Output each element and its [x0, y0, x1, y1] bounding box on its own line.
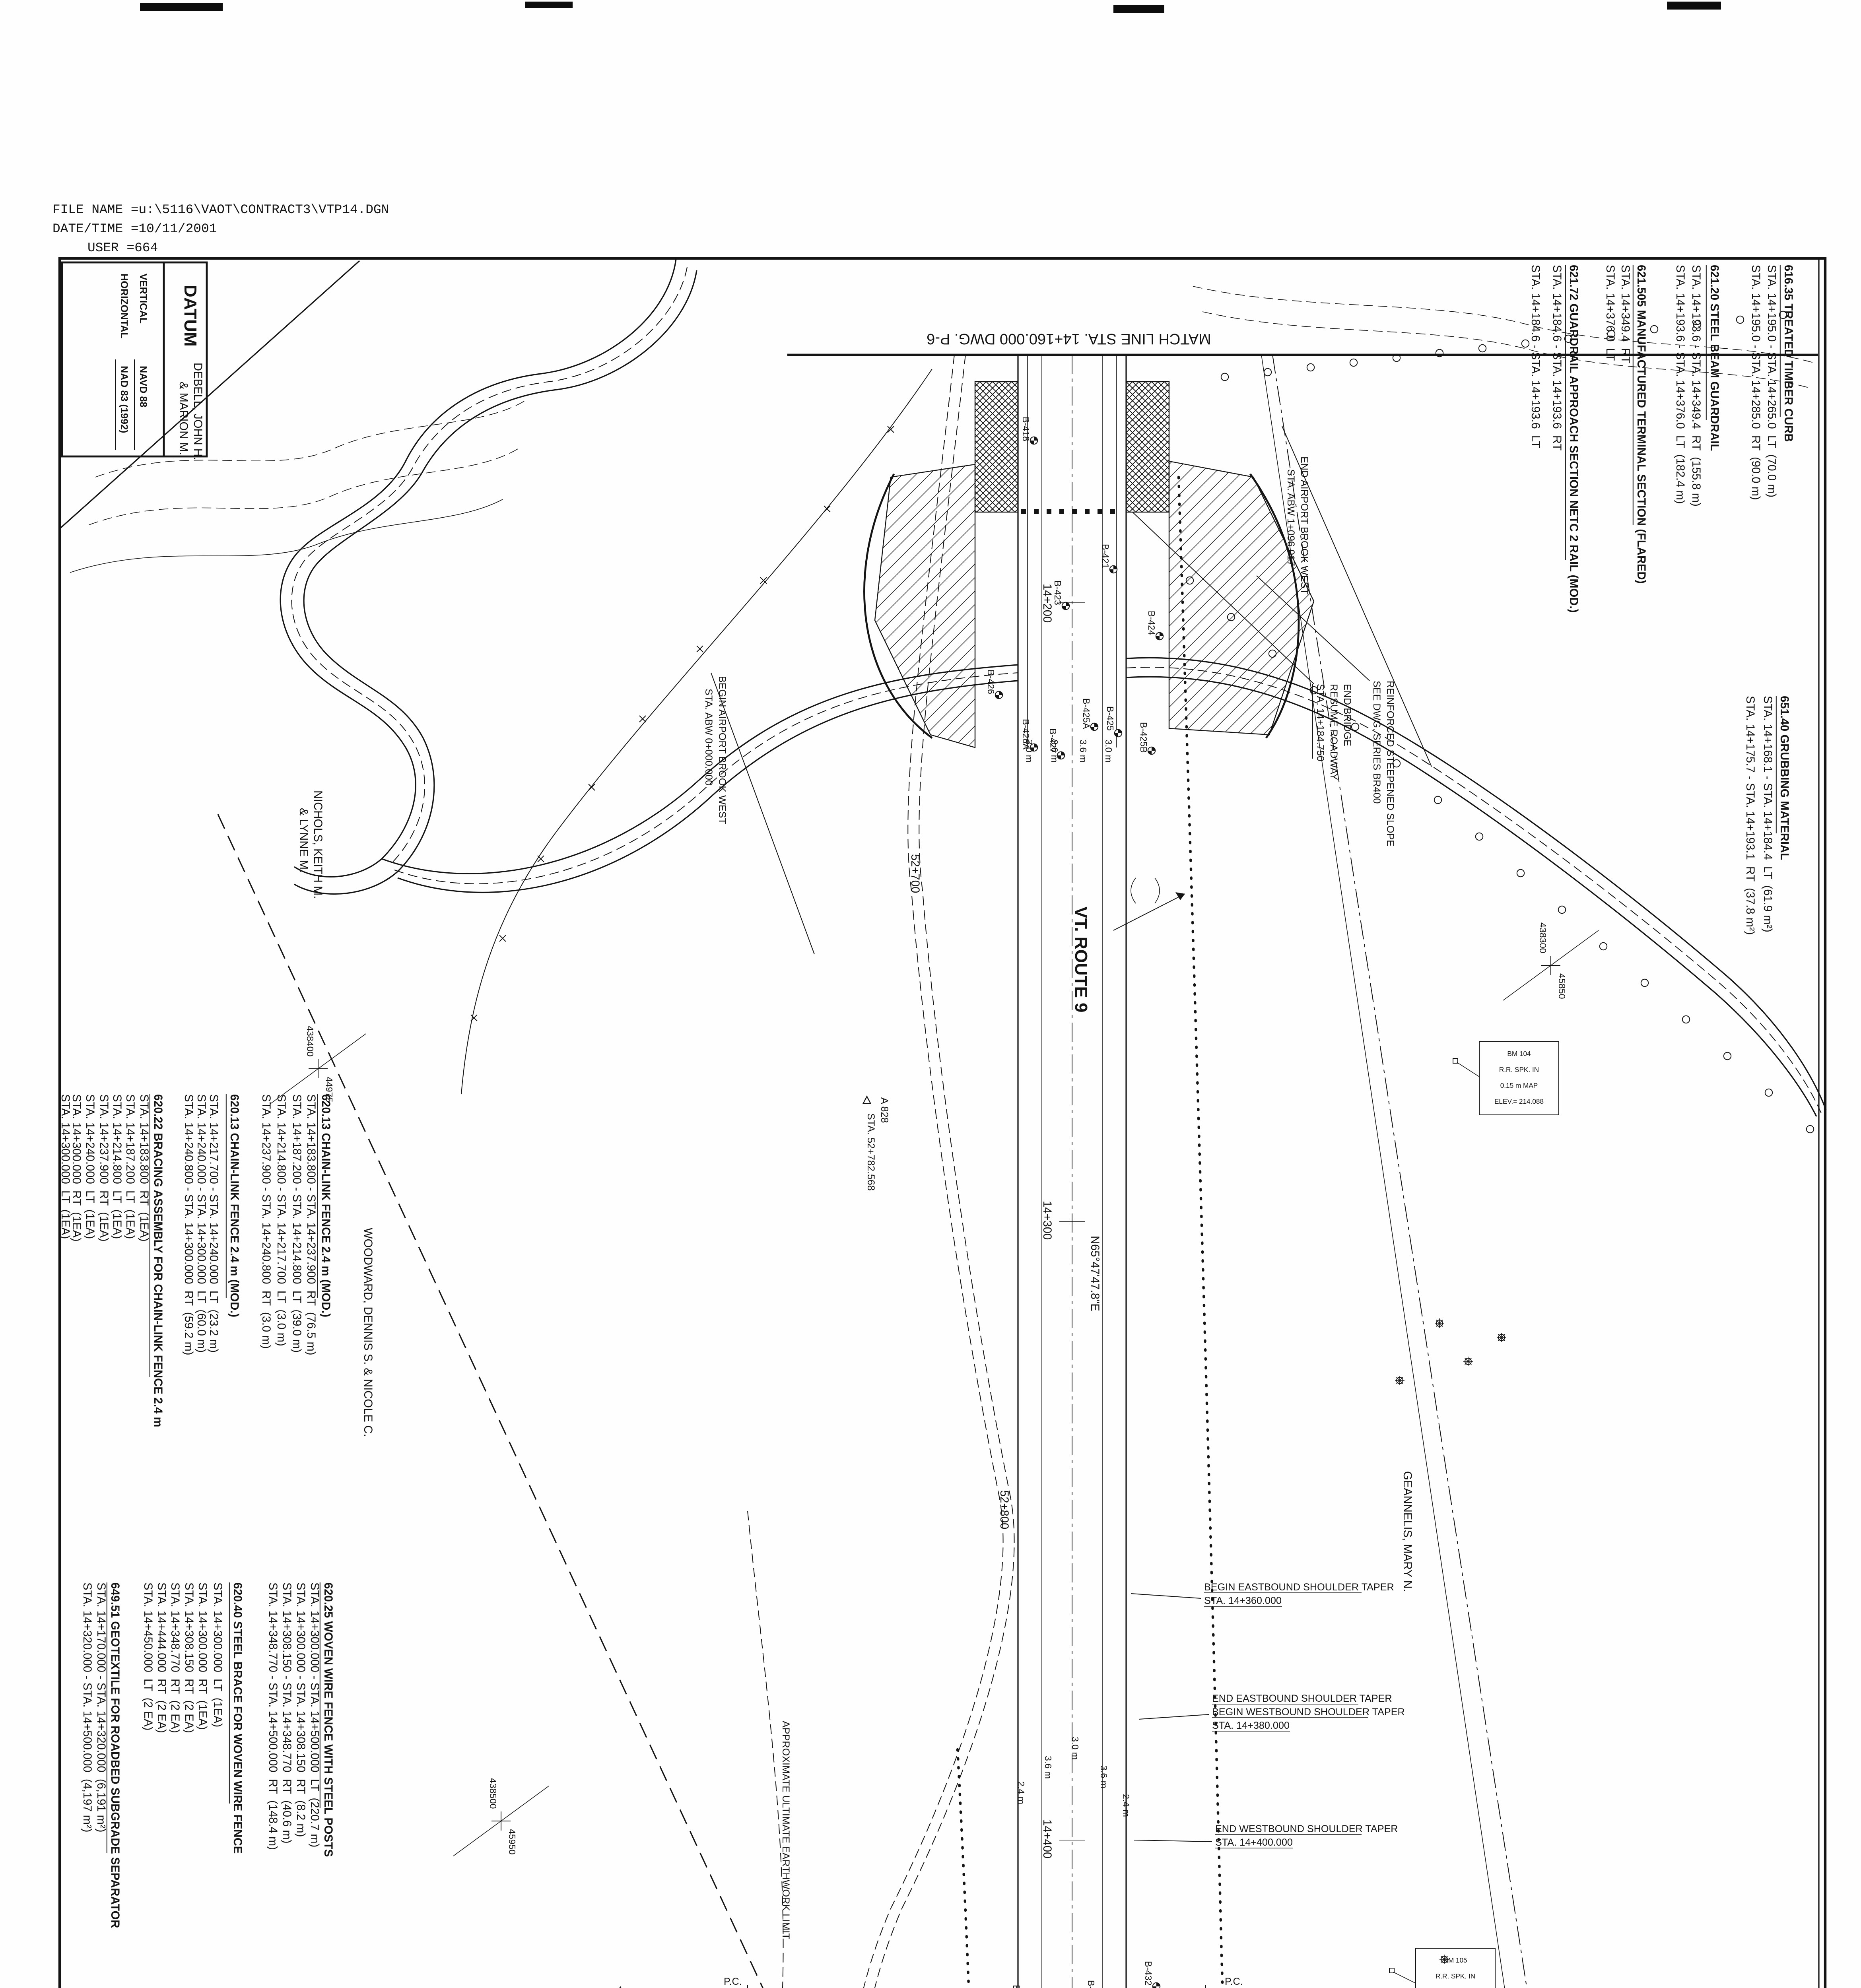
svg-text:SEE DWG. SERIES BR400: SEE DWG. SERIES BR400	[1371, 681, 1382, 804]
owner-name: & MARION M.	[177, 382, 190, 455]
svg-text:RESUME ROADWAY: RESUME ROADWAY	[1328, 684, 1339, 780]
header-filename: FILE NAME =u:\5116\VAOT\CONTRACT3\VTP14.…	[52, 202, 389, 217]
svg-text:3.6 m: 3.6 m	[1099, 1765, 1109, 1788]
route-name: VT. ROUTE 9	[1071, 907, 1091, 1013]
header-user: USER =664	[87, 241, 158, 255]
boring-label: B-432	[1143, 1961, 1154, 1986]
svg-text:STA. 14+400.000: STA. 14+400.000	[1215, 1837, 1293, 1848]
item-line: STA. 14+237.900 RT (1EA)	[97, 1094, 110, 1242]
item-line: STA. 14+187.200 - STA. 14+214.800 LT (39…	[290, 1094, 303, 1353]
item-line: STA. 14+376.0 LT	[1604, 265, 1616, 361]
item-line: STA. 14+168.1 - STA. 14+184.4 LT (61.9 m…	[1761, 696, 1774, 932]
item-line: STA. 14+175.7 - STA. 14+193.1 RT (37.8 m…	[1744, 696, 1756, 935]
item-title: 621.20 STEEL BEAM GUARDRAIL	[1708, 265, 1721, 451]
shrub-icon	[1435, 1318, 1444, 1328]
pc-label: P.C.	[724, 1976, 742, 1987]
svg-text:3.6 m: 3.6 m	[1043, 1756, 1053, 1779]
svg-text:45950: 45950	[507, 1829, 517, 1854]
item-line: STA. 14+237.900 - STA. 14+240.800 RT (3.…	[260, 1094, 272, 1349]
item-line: STA. 14+193.6 - STA. 14+349.4 RT (155.8 …	[1690, 265, 1702, 507]
grid-label: 438500	[488, 1778, 498, 1809]
item-title: 621.505 MANUFACTURED TERMINAL SECTION (F…	[1635, 265, 1647, 584]
item-line: STA. 14+183.800 RT (1EA)	[138, 1094, 150, 1242]
begin-brook-callout: BEGIN AIRPORT BROOK WEST	[717, 676, 728, 824]
grid-label: 438300	[1538, 922, 1548, 953]
svg-text:STA. 14+360.000: STA. 14+360.000	[1204, 1595, 1282, 1606]
boring-label: B-436	[1011, 1985, 1022, 1988]
svg-text:STA. 14+184.750: STA. 14+184.750	[1315, 684, 1326, 761]
scan-noise	[0, 2, 1861, 1988]
item-title: 620.25 WOVEN WIRE FENCE WITH STEEL POSTS	[322, 1582, 334, 1857]
svg-text:0.15 m MAP: 0.15 m MAP	[1500, 1081, 1538, 1089]
item-title: 620.13 CHAIN-LINK FENCE 2.4 m (MOD.)	[319, 1094, 332, 1317]
item-line: STA. 14+300.000 - STA. 14+500.000 LT (22…	[308, 1582, 321, 1847]
item-line: STA. 14+300.000 LT (1EA)	[59, 1094, 72, 1239]
item-line: STA. 14+214.800 LT (1EA)	[111, 1094, 123, 1239]
boring-label: B-421	[1100, 544, 1111, 569]
item-line: STA. 14+320.000 - STA. 14+500.000 (4,197…	[81, 1582, 93, 1832]
boring-label: B-434	[1086, 1980, 1096, 1988]
item-line: STA. 14+300.000 - STA. 14+308.150 RT (8.…	[294, 1582, 307, 1837]
svg-text:3.6 m: 3.6 m	[1049, 740, 1060, 763]
item-title: 651.40 GRUBBING MATERIAL	[1778, 696, 1791, 860]
end-bridge-callout: END BRIDGE	[1342, 684, 1353, 746]
svg-text:3.6 m: 3.6 m	[1078, 740, 1088, 763]
owner-name: DEBELL, JOHN H.	[191, 363, 204, 460]
item-blocks-left-upper: 620.13 CHAIN-LINK FENCE 2.4 m (MOD.) STA…	[59, 1094, 332, 1427]
matchline-top-label: MATCH LINE STA. 14+160.000 DWG. P-6	[927, 330, 1211, 347]
boring-label: B-418	[1021, 417, 1031, 441]
station-label: 14+200	[1041, 584, 1053, 623]
benchmark-bm104: BM 104 R.R. SPK. IN 0.15 m MAP ELEV.= 21…	[1453, 1042, 1559, 1115]
bridge-area	[864, 382, 1314, 747]
item-line: STA. 14+349.4 RT	[1619, 265, 1632, 363]
earthwork-limit-callout: APPROXIMATE ULTIMATE EARTHWORK LIMIT	[780, 1721, 791, 1939]
item-line: STA. 14+184.6 - STA. 14+193.6 RT	[1550, 265, 1563, 450]
datum-vertical-label: VERTICAL	[138, 274, 149, 324]
boring-label: B-426	[986, 670, 996, 694]
svg-text:ELEV.= 214.088: ELEV.= 214.088	[1494, 1097, 1544, 1105]
datum-title: DATUM	[181, 285, 200, 347]
item-title: 620.13 CHAIN-LINK FENCE 2.4 m (MOD.)	[228, 1094, 241, 1317]
owner-name: GEANNELIS, MARY N.	[1401, 1471, 1414, 1592]
item-line: STA. 14+308.150 RT (2 EA)	[183, 1582, 195, 1733]
taper-callouts: BEGIN EASTBOUND SHOULDER TAPER STA. 14+3…	[1131, 1582, 1468, 1988]
svg-text:45850: 45850	[1557, 973, 1567, 999]
boring-label: B-424	[1146, 611, 1157, 635]
item-line: STA. 14+444.000 RT (2 EA)	[155, 1582, 168, 1733]
header-datetime: DATE/TIME =10/11/2001	[52, 221, 217, 236]
item-line: STA. 14+183.800 - STA. 14+237.900 RT (76…	[305, 1094, 317, 1355]
item-line: STA. 14+348.770 - STA. 14+500.000 RT (14…	[266, 1582, 279, 1850]
dim-label: 3.0 m	[1024, 740, 1034, 763]
benchmark-bm105: BM 105 R.R. SPK. IN 0.23 m POP. ELEV.= 2…	[1389, 1948, 1495, 1988]
grid-label: 438400	[305, 1026, 315, 1056]
item-title: 620.40 STEEL BRACE FOR WOVEN WIRE FENCE	[231, 1582, 244, 1854]
control-point-label: A 828	[879, 1097, 890, 1123]
datum-horizontal-label: HORIZONTAL	[118, 274, 130, 338]
datum-horizontal-value: NAD 83 (1992)	[118, 366, 130, 433]
item-title: 616.35 TREATED TIMBER CURB	[1782, 265, 1795, 442]
plan-sheet: DATUM VERTICAL NAVD 88 HORIZONTAL NAD 83…	[0, 0, 1861, 1988]
item-line: STA. 14+217.700 - STA. 14+240.000 LT (23…	[207, 1094, 220, 1353]
brook-linework	[280, 259, 1826, 1116]
control-points: A 828 STA. 52+782.568 A 829 STA. 52+910.…	[617, 1097, 1302, 1988]
route-bearing: N65°47'47.8"E	[1088, 1236, 1101, 1311]
station-label: 14+300	[1041, 1201, 1053, 1240]
svg-text:R.R. SPK. IN: R.R. SPK. IN	[1436, 1972, 1475, 1980]
item-line: STA. 14+348.770 RT (2 EA)	[169, 1582, 181, 1733]
taper-callout: BEGIN EASTBOUND SHOULDER TAPER	[1204, 1582, 1394, 1593]
item-line: STA. 14+450.000 LT (2 EA)	[142, 1582, 154, 1730]
item-line: STA. 14+300.000 RT (1EA)	[196, 1582, 209, 1730]
svg-text:STA. ABW 0+000.000: STA. ABW 0+000.000	[703, 689, 714, 786]
bm-label: BM 104	[1507, 1050, 1531, 1058]
owner-name: NICHOLS, KEITH M.	[311, 790, 324, 899]
item-line: STA. 14+187.200 LT (1EA)	[124, 1094, 136, 1239]
grid-ticks: 438400 44975 438300 45850 438500 45950 4…	[270, 922, 1599, 1988]
item-line: STA. 14+195.0 - STA. 14+265.0 LT (70.0 m…	[1765, 265, 1778, 497]
pc-label: P.C.	[1225, 1976, 1243, 1987]
chain-link-fence-line	[461, 369, 932, 1094]
item-title: 649.51 GEOTEXTILE FOR ROADBED SUBGRADE S…	[109, 1582, 121, 1928]
boring-label: B-425A	[1081, 698, 1092, 729]
svg-text:2.4 m: 2.4 m	[1121, 1794, 1131, 1817]
item-line: STA. 14+240.800 - STA. 14+300.000 RT (59…	[182, 1094, 195, 1355]
svg-text:BEGIN WESTBOUND SHOULDER TAPER: BEGIN WESTBOUND SHOULDER TAPER	[1212, 1706, 1405, 1718]
owner-name: & LYNNE M.	[297, 808, 310, 873]
earthwork-limit-line	[740, 1511, 783, 1988]
item-blocks-left-lower: 620.25 WOVEN WIRE FENCE WITH STEEL POSTS…	[81, 1582, 334, 1928]
boring-label: B-423	[1053, 580, 1063, 605]
item-title: 620.22 BRACING ASSEMBLY FOR CHAIN-LINK F…	[152, 1094, 164, 1427]
item-line: STA. 14+308.150 - STA. 14+348.770 RT (40…	[280, 1582, 293, 1844]
svg-text:R.R. SPK. IN: R.R. SPK. IN	[1499, 1066, 1539, 1074]
svg-text:2.4 m: 2.4 m	[1016, 1781, 1026, 1804]
taper-callout: END WESTBOUND SHOULDER TAPER	[1215, 1823, 1398, 1835]
matchline-top: MATCH LINE STA. 14+160.000 DWG. P-6	[787, 330, 1818, 355]
old-station-label: 52+800	[998, 1490, 1010, 1529]
item-line: STA. 14+300.000 LT (1EA)	[211, 1582, 224, 1727]
item-line: STA. 14+240.000 LT (1EA)	[84, 1094, 96, 1239]
svg-text:3.0 m: 3.0 m	[1070, 1737, 1080, 1760]
plan-drawing: DATUM VERTICAL NAVD 88 HORIZONTAL NAD 83…	[0, 0, 1861, 1988]
boring-label: B-425	[1105, 706, 1115, 731]
item-blocks-right: 616.35 TREATED TIMBER CURB STA. 14+195.0…	[1529, 265, 1795, 935]
svg-text:STA. 14+380.000: STA. 14+380.000	[1212, 1720, 1290, 1731]
item-line: STA. 14+300.000 RT (1EA)	[70, 1094, 83, 1242]
svg-text:STA. ABW 1+096.017: STA. ABW 1+096.017	[1285, 469, 1296, 566]
svg-text:44975: 44975	[324, 1077, 334, 1102]
item-line: STA. 14+184.6 - STA. 14+193.6 LT	[1529, 265, 1542, 448]
taper-callout: END EASTBOUND SHOULDER TAPER	[1212, 1693, 1392, 1704]
svg-text:3.0 m: 3.0 m	[1103, 740, 1114, 763]
owner-name: WOODWARD, DENNIS S. & NICOLE C.	[361, 1228, 374, 1437]
item-line: STA. 14+195.0 - STA. 14+285.0 RT (90.0 m…	[1749, 265, 1762, 500]
bm-label: BM 105	[1443, 1956, 1467, 1964]
datum-vertical-value: NAVD 88	[138, 366, 149, 408]
reinforced-slope-callout: REINFORCED STEEPENED SLOPE	[1385, 681, 1396, 846]
boring-label: B-425B	[1138, 722, 1149, 753]
file-header: FILE NAME =u:\5116\VAOT\CONTRACT3\VTP14.…	[52, 202, 389, 255]
svg-text:STA. 52+782.568: STA. 52+782.568	[865, 1113, 876, 1191]
route-labels: VT. ROUTE 9 N65°47'47.8"E CURVE W.B.6 14…	[829, 584, 1101, 1988]
item-line: STA. 14+170.000 - STA. 14+320.000 (6,191…	[95, 1582, 107, 1832]
station-label: 14+400	[1041, 1819, 1053, 1858]
item-line: STA. 14+214.800 - STA. 14+217.700 LT (3.…	[275, 1094, 288, 1346]
item-line: STA. 14+240.000 - STA. 14+300.000 LT (60…	[195, 1094, 208, 1353]
old-station-label: 52+700	[909, 854, 921, 893]
item-line: STA. 14+193.6 - STA. 14+376.0 LT (182.4 …	[1674, 265, 1686, 504]
item-title: 621.72 GUARDRAIL APPROACH SECTION NETC 2…	[1567, 265, 1580, 613]
